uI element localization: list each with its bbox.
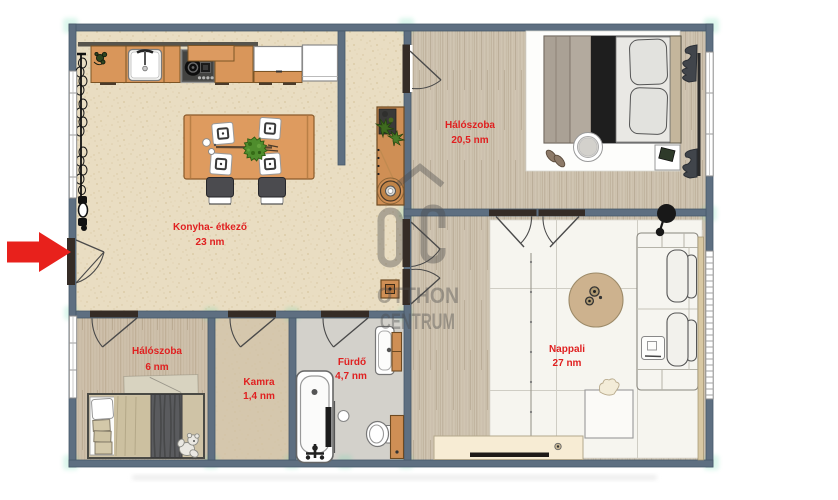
svg-text:Nappali: Nappali	[549, 344, 585, 355]
svg-text:27 nm: 27 nm	[553, 358, 582, 369]
svg-text:6 nm: 6 nm	[145, 362, 168, 373]
svg-text:Fürdő: Fürdő	[338, 357, 366, 368]
svg-text:20,5 nm: 20,5 nm	[451, 135, 488, 146]
svg-text:CENTRUM: CENTRUM	[380, 309, 455, 334]
svg-text:Hálószoba: Hálószoba	[132, 346, 182, 357]
svg-text:OTTHON: OTTHON	[377, 283, 459, 308]
svg-text:4,7 nm: 4,7 nm	[335, 371, 367, 382]
svg-text:Konyha- étkező: Konyha- étkező	[173, 222, 247, 233]
svg-text:23 nm: 23 nm	[196, 237, 225, 248]
svg-text:Kamra: Kamra	[243, 377, 275, 388]
svg-text:1,4 nm: 1,4 nm	[243, 391, 275, 402]
svg-text:Hálószoba: Hálószoba	[445, 120, 495, 131]
